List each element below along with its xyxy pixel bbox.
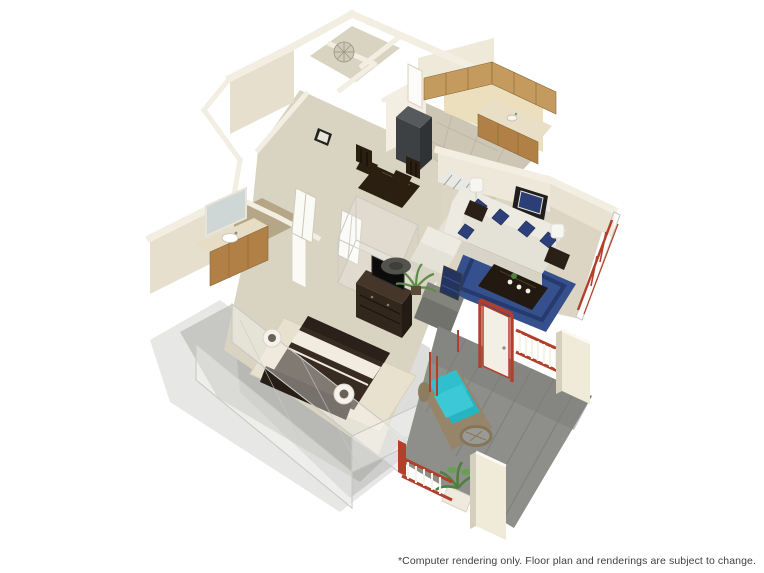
floorplan-3d-scene <box>0 0 764 573</box>
bathroom-door <box>292 232 306 288</box>
table-plant <box>511 273 517 279</box>
utility-door <box>408 64 422 108</box>
kitchen-sink <box>507 115 517 121</box>
bifold-closet-doors-1 <box>292 188 316 243</box>
bathroom-sink <box>222 234 238 243</box>
balcony-patio <box>398 300 592 540</box>
disclaimer-text: *Computer rendering only. Floor plan and… <box>398 555 756 567</box>
floorplan-rendering-canvas: *Computer rendering only. Floor plan and… <box>0 0 764 573</box>
round-wicker-table <box>461 427 491 446</box>
pillar-south <box>470 452 506 540</box>
